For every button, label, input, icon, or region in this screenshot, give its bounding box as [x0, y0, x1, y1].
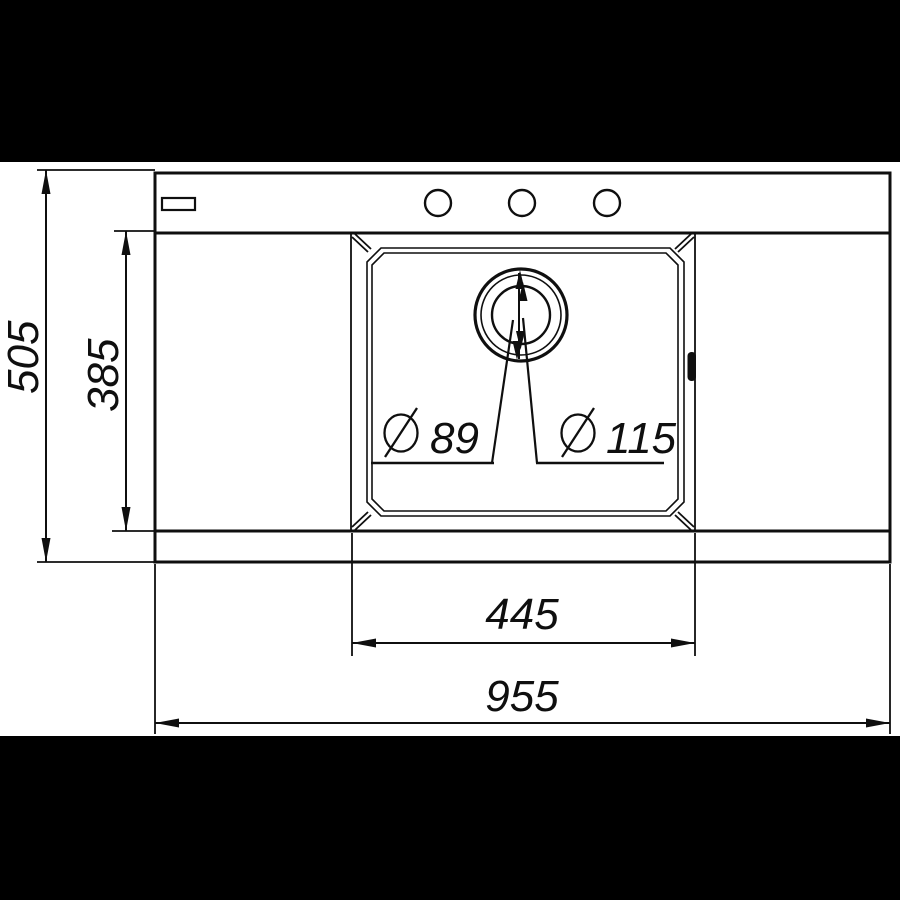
overflow-notch — [688, 352, 697, 381]
screenshot-stage: 89 115 505 385 445 — [0, 0, 900, 900]
sink-dimension-diagram: 89 115 505 385 445 — [0, 0, 900, 900]
dimension-label-505: 505 — [0, 320, 48, 394]
drain-inner-diameter-label: 89 — [430, 414, 479, 463]
letterbox-bottom-bar — [0, 736, 900, 900]
dimension-label-385: 385 — [79, 338, 128, 412]
letterbox-top-bar — [0, 0, 900, 162]
dimension-label-445: 445 — [485, 590, 559, 639]
drain-outer-diameter-label: 115 — [606, 414, 677, 463]
dimension-label-955: 955 — [485, 672, 559, 721]
